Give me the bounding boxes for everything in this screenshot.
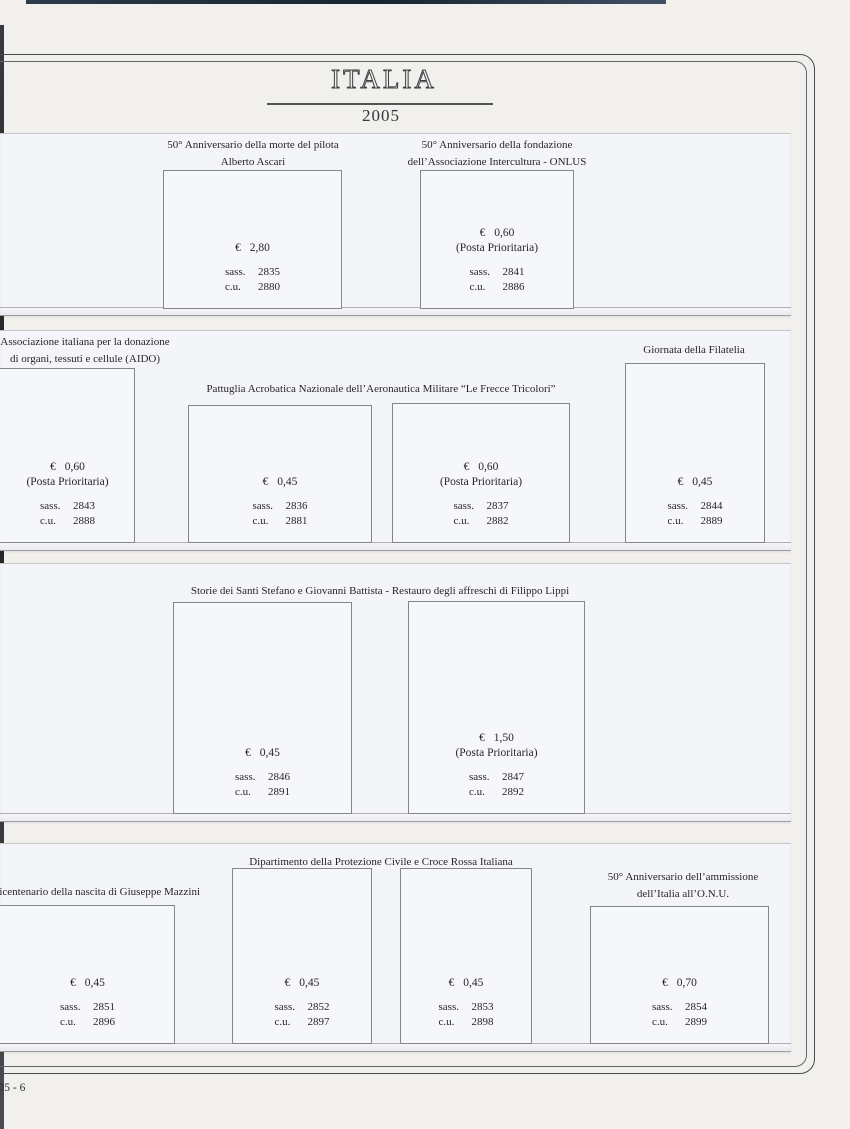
album-page: ITALIA 2005 50° Anniversario della morte… xyxy=(0,0,850,1129)
section-caption-frecce-tricolori: Pattuglia Acrobatica Nazionale dell’Aero… xyxy=(81,381,681,398)
stamp-value: € 0,45 xyxy=(174,746,351,761)
catalog-numbers: sass.2837 c.u.2882 xyxy=(454,499,509,529)
catalog-sass-label: sass. xyxy=(469,770,502,785)
catalog-cu-label: c.u. xyxy=(253,514,286,529)
catalog-sass-label: sass. xyxy=(60,1000,93,1015)
catalog-sass-number: 2843 xyxy=(73,500,95,512)
catalog-sass-label: sass. xyxy=(235,770,268,785)
catalog-cu-number: 2896 xyxy=(93,1016,115,1028)
catalog-cu-label: c.u. xyxy=(469,785,502,800)
catalog-sass-label: sass. xyxy=(470,265,503,280)
catalog-cu-number: 2889 xyxy=(701,515,723,527)
stamp-placeholder-box: € 1,50 (Posta Prioritaria) sass.2847 c.u… xyxy=(408,601,585,814)
catalog-sass-label: sass. xyxy=(253,499,286,514)
stamp-placeholder-box: € 0,70 sass.2854 c.u.2899 xyxy=(590,906,769,1044)
catalog-numbers: sass.2852 c.u.2897 xyxy=(275,1000,330,1030)
section-caption-filatelia: Giornata della Filatelia xyxy=(594,342,794,359)
catalog-numbers: sass.2853 c.u.2898 xyxy=(439,1000,494,1030)
catalog-cu-number: 2899 xyxy=(685,1016,707,1028)
catalog-cu-number: 2891 xyxy=(268,786,290,798)
stamp-values: € 0,45 sass.2852 c.u.2897 xyxy=(233,976,371,1030)
stamp-placeholder-box: € 2,80 sass.2835 c.u.2880 xyxy=(163,170,342,309)
catalog-numbers: sass.2847 c.u.2892 xyxy=(469,770,524,800)
catalog-sass-number: 2841 xyxy=(503,266,525,278)
section-caption-protezione-civile: Dipartimento della Protezione Civile e C… xyxy=(131,854,631,871)
catalog-sass-label: sass. xyxy=(40,499,73,514)
catalog-sass-number: 2854 xyxy=(685,1001,707,1013)
catalog-cu-label: c.u. xyxy=(439,1015,472,1030)
stamp-values: € 0,60 (Posta Prioritaria) sass.2843 c.u… xyxy=(1,460,134,529)
stamp-value: € 0,45 xyxy=(626,475,764,490)
catalog-cu-number: 2880 xyxy=(258,281,280,293)
catalog-cu-number: 2886 xyxy=(503,281,525,293)
stamp-placeholder-box: € 0,45 sass.2852 c.u.2897 xyxy=(232,868,372,1044)
catalog-cu-label: c.u. xyxy=(454,514,487,529)
stamp-values: € 0,60 (Posta Prioritaria) sass.2837 c.u… xyxy=(393,460,569,529)
stamp-placeholder-box: € 0,60 (Posta Prioritaria) sass.2837 c.u… xyxy=(392,403,570,543)
catalog-sass-number: 2836 xyxy=(286,500,308,512)
catalog-cu-label: c.u. xyxy=(235,785,268,800)
catalog-sass-number: 2847 xyxy=(502,771,524,783)
strip-mount-line xyxy=(0,307,791,308)
catalog-sass-label: sass. xyxy=(439,1000,472,1015)
catalog-numbers: sass.2851 c.u.2896 xyxy=(60,1000,115,1030)
title-underline xyxy=(267,103,493,105)
stamp-values: € 0,45 sass.2853 c.u.2898 xyxy=(401,976,531,1030)
catalog-sass-number: 2851 xyxy=(93,1001,115,1013)
stamp-value: € 0,60 xyxy=(421,226,573,241)
catalog-sass-number: 2852 xyxy=(308,1001,330,1013)
catalog-sass-number: 2844 xyxy=(701,500,723,512)
stamp-value: € 1,50 xyxy=(409,731,584,746)
album-strip xyxy=(0,563,791,822)
catalog-sass-label: sass. xyxy=(652,1000,685,1015)
section-caption-lippi: Storie dei Santi Stefano e Giovanni Batt… xyxy=(80,583,680,600)
catalog-numbers: sass.2854 c.u.2899 xyxy=(652,1000,707,1030)
priority-label: (Posta Prioritaria) xyxy=(1,475,134,490)
section-caption-onu: 50° Anniversario dell’ammissione dell’It… xyxy=(583,869,783,902)
catalog-sass-number: 2837 xyxy=(487,500,509,512)
stamp-values: € 0,45 sass.2836 c.u.2881 xyxy=(189,475,371,529)
page-number: 2005 - 6 xyxy=(0,1082,25,1094)
catalog-cu-label: c.u. xyxy=(275,1015,308,1030)
catalog-sass-number: 2846 xyxy=(268,771,290,783)
stamp-values: € 2,80 sass.2835 c.u.2880 xyxy=(164,241,341,295)
stamp-values: € 0,70 sass.2854 c.u.2899 xyxy=(591,976,768,1030)
stamp-values: € 0,45 sass.2846 c.u.2891 xyxy=(174,746,351,800)
section-caption-aido: Associazione italiana per la donazione d… xyxy=(0,334,193,367)
catalog-cu-number: 2897 xyxy=(308,1016,330,1028)
page-title: ITALIA xyxy=(181,64,584,95)
priority-label: (Posta Prioritaria) xyxy=(421,241,573,256)
priority-label: (Posta Prioritaria) xyxy=(409,746,584,761)
strip-mount-line xyxy=(0,813,791,814)
catalog-numbers: sass.2846 c.u.2891 xyxy=(235,770,290,800)
catalog-sass-label: sass. xyxy=(668,499,701,514)
stamp-values: € 0,45 sass.2844 c.u.2889 xyxy=(626,475,764,529)
scan-top-edge xyxy=(26,0,666,4)
catalog-cu-label: c.u. xyxy=(470,280,503,295)
stamp-placeholder-box: € 0,45 sass.2846 c.u.2891 xyxy=(173,602,352,814)
stamp-value: € 2,80 xyxy=(164,241,341,256)
catalog-numbers: sass.2844 c.u.2889 xyxy=(668,499,723,529)
catalog-cu-number: 2892 xyxy=(502,786,524,798)
catalog-cu-label: c.u. xyxy=(668,514,701,529)
catalog-numbers: sass.2835 c.u.2880 xyxy=(225,265,280,295)
catalog-sass-label: sass. xyxy=(454,499,487,514)
catalog-cu-number: 2881 xyxy=(286,515,308,527)
catalog-sass-label: sass. xyxy=(275,1000,308,1015)
year-label: 2005 xyxy=(281,106,481,126)
catalog-numbers: sass.2841 c.u.2886 xyxy=(470,265,525,295)
catalog-numbers: sass.2836 c.u.2881 xyxy=(253,499,308,529)
stamp-placeholder-box: € 0,45 sass.2851 c.u.2896 xyxy=(0,905,175,1044)
stamp-placeholder-box: € 0,45 sass.2844 c.u.2889 xyxy=(625,363,765,543)
stamp-value: € 0,45 xyxy=(189,475,371,490)
catalog-sass-label: sass. xyxy=(225,265,258,280)
stamp-values: € 0,45 sass.2851 c.u.2896 xyxy=(1,976,174,1030)
stamp-placeholder-box: € 0,60 (Posta Prioritaria) sass.2843 c.u… xyxy=(0,368,135,543)
section-caption-mazzini: Bicentenario della nascita di Giuseppe M… xyxy=(0,884,200,901)
catalog-cu-label: c.u. xyxy=(225,280,258,295)
stamp-value: € 0,70 xyxy=(591,976,768,991)
stamp-value: € 0,45 xyxy=(233,976,371,991)
stamp-value: € 0,45 xyxy=(401,976,531,991)
catalog-sass-number: 2853 xyxy=(472,1001,494,1013)
stamp-value: € 0,60 xyxy=(1,460,134,475)
stamp-value: € 0,45 xyxy=(1,976,174,991)
catalog-cu-number: 2898 xyxy=(472,1016,494,1028)
section-caption-intercultura: 50° Anniversario della fondazione dell’A… xyxy=(347,137,647,170)
stamp-placeholder-box: € 0,45 sass.2836 c.u.2881 xyxy=(188,405,372,543)
stamp-value: € 0,60 xyxy=(393,460,569,475)
stamp-values: € 1,50 (Posta Prioritaria) sass.2847 c.u… xyxy=(409,731,584,800)
catalog-cu-label: c.u. xyxy=(60,1015,93,1030)
stamp-placeholder-box: € 0,45 sass.2853 c.u.2898 xyxy=(400,868,532,1044)
stamp-placeholder-box: € 0,60 (Posta Prioritaria) sass.2841 c.u… xyxy=(420,170,574,309)
catalog-numbers: sass.2843 c.u.2888 xyxy=(40,499,95,529)
catalog-cu-number: 2888 xyxy=(73,515,95,527)
catalog-cu-label: c.u. xyxy=(652,1015,685,1030)
catalog-cu-number: 2882 xyxy=(487,515,509,527)
priority-label: (Posta Prioritaria) xyxy=(393,475,569,490)
stamp-values: € 0,60 (Posta Prioritaria) sass.2841 c.u… xyxy=(421,226,573,295)
catalog-cu-label: c.u. xyxy=(40,514,73,529)
catalog-sass-number: 2835 xyxy=(258,266,280,278)
